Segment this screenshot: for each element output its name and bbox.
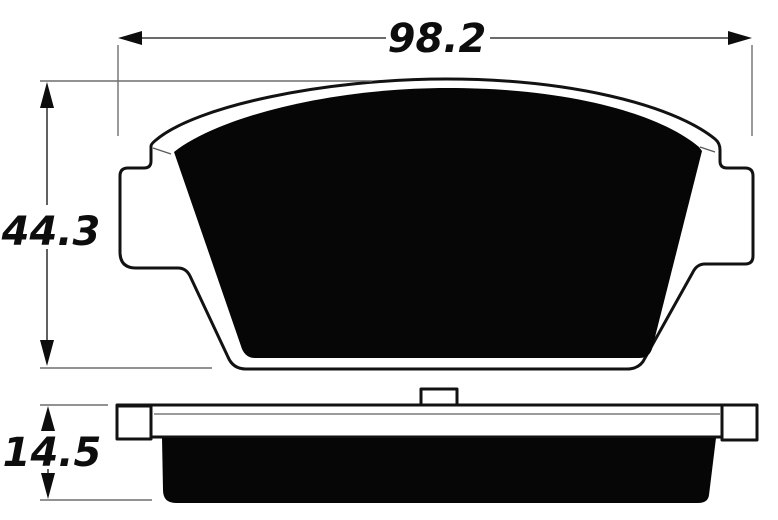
arrowhead-down — [41, 473, 55, 499]
arrowhead-right — [728, 31, 752, 45]
technical-drawing: 98.2 44.3 14.5 — [0, 0, 778, 520]
arrowhead-left — [118, 31, 142, 45]
width-dimension-label: 98.2 — [388, 16, 487, 62]
pad-front-view — [120, 79, 753, 369]
arrowhead-down — [40, 340, 54, 366]
friction-material-side — [162, 438, 716, 503]
arrowhead-up — [41, 406, 55, 431]
drawing-canvas: 98.2 44.3 14.5 — [0, 0, 778, 520]
right-end-cap — [722, 405, 757, 440]
height-dimension-label: 44.3 — [1, 209, 101, 255]
mounting-tab — [421, 389, 457, 406]
left-end-cap — [117, 406, 151, 439]
thickness-dimension-label: 14.5 — [3, 430, 102, 476]
friction-material-front — [174, 88, 702, 358]
backing-plate-side — [117, 405, 722, 437]
arrowhead-up — [40, 82, 54, 108]
pad-side-view — [117, 389, 757, 503]
